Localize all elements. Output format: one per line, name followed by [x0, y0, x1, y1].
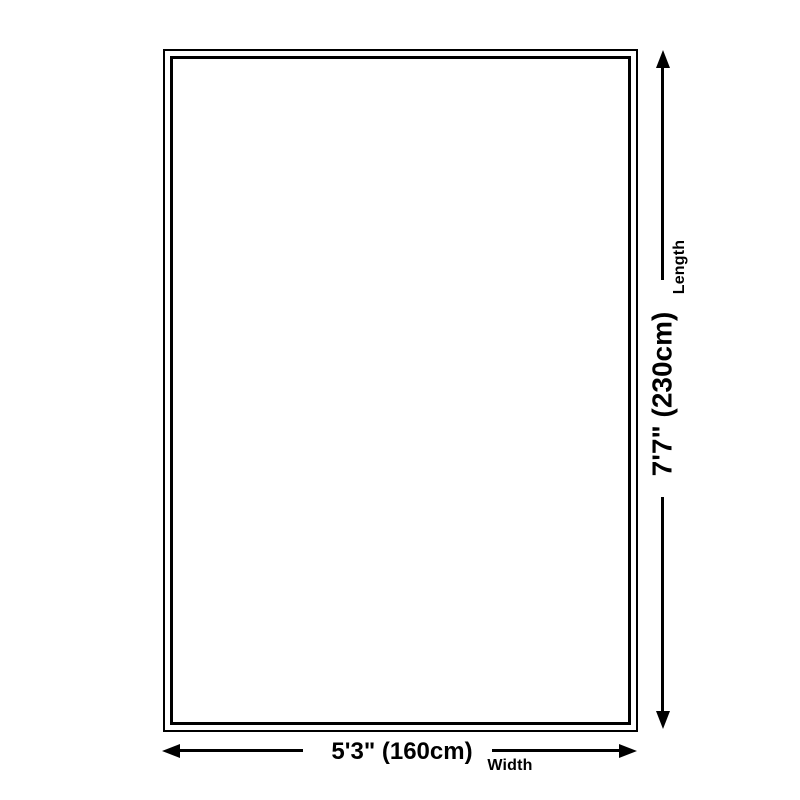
length-dimension-line-upper: [661, 58, 664, 280]
width-value: 5'3" (160cm): [331, 739, 472, 765]
width-dimension-line-left: [170, 749, 303, 752]
length-dimension-line-lower: [661, 497, 664, 712]
arrow-right-icon: [619, 744, 637, 758]
width-dimension-line-right: [492, 749, 619, 752]
length-axis-label: Length: [671, 240, 689, 295]
arrow-down-icon: [656, 711, 670, 729]
width-axis-label: Width: [487, 757, 532, 775]
length-value: 7'7" (230cm): [648, 312, 679, 477]
rug-size-diagram: Length 7'7" (230cm) 5'3" (160cm) Width: [0, 0, 800, 800]
rug-outline: [163, 49, 638, 732]
rug-inner-border: [170, 56, 631, 725]
